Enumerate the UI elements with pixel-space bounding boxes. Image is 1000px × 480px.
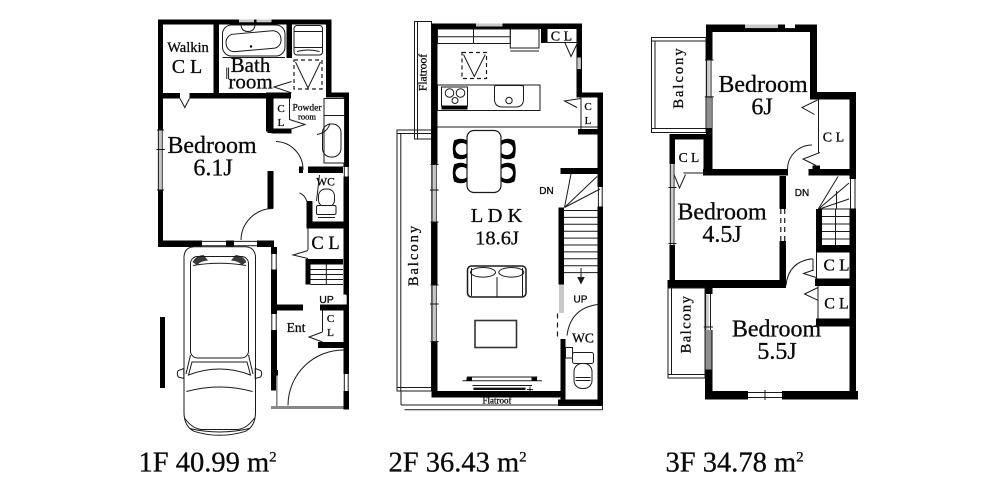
svg-text:C: C <box>327 313 334 325</box>
svg-text:Flatroof: Flatroof <box>483 396 512 406</box>
svg-text:L: L <box>327 327 334 339</box>
svg-text:Balcony: Balcony <box>671 46 687 108</box>
svg-text:18.6J: 18.6J <box>475 228 519 250</box>
svg-text:DN: DN <box>539 186 553 197</box>
svg-text:UP: UP <box>574 295 588 306</box>
svg-text:1F 40.99 m2: 1F 40.99 m2 <box>139 448 277 479</box>
svg-text:Balcony: Balcony <box>406 224 422 286</box>
svg-text:DN: DN <box>795 188 809 199</box>
svg-text:C L: C L <box>824 256 850 275</box>
svg-text:C: C <box>277 103 284 115</box>
svg-text:Balcony: Balcony <box>678 295 694 354</box>
svg-text:C L: C L <box>824 296 848 313</box>
svg-text:6J: 6J <box>751 95 772 121</box>
svg-text:WC: WC <box>572 331 594 346</box>
svg-text:5.5J: 5.5J <box>757 339 796 365</box>
svg-text:L: L <box>585 115 592 127</box>
svg-text:WC: WC <box>316 177 335 189</box>
svg-text:C: C <box>584 101 591 113</box>
svg-text:C L: C L <box>311 234 339 254</box>
svg-text:room: room <box>228 70 272 94</box>
svg-text:C L: C L <box>679 150 700 165</box>
svg-text:2F 36.43 m2: 2F 36.43 m2 <box>389 448 527 479</box>
svg-text:Walkin: Walkin <box>167 40 209 56</box>
svg-text:3F 34.78 m2: 3F 34.78 m2 <box>666 448 804 479</box>
svg-text:L: L <box>278 117 285 129</box>
svg-text:6.1J: 6.1J <box>193 156 232 182</box>
svg-text:Ent: Ent <box>287 320 306 335</box>
svg-text:room: room <box>298 112 316 122</box>
svg-text:UP: UP <box>319 294 334 306</box>
svg-text:Flatroof: Flatroof <box>418 54 430 91</box>
svg-text:4.5J: 4.5J <box>702 222 741 248</box>
svg-text:C L: C L <box>823 131 844 146</box>
svg-text:C L: C L <box>172 56 203 78</box>
svg-text:L D K: L D K <box>471 205 523 227</box>
svg-text:C L: C L <box>551 30 572 45</box>
